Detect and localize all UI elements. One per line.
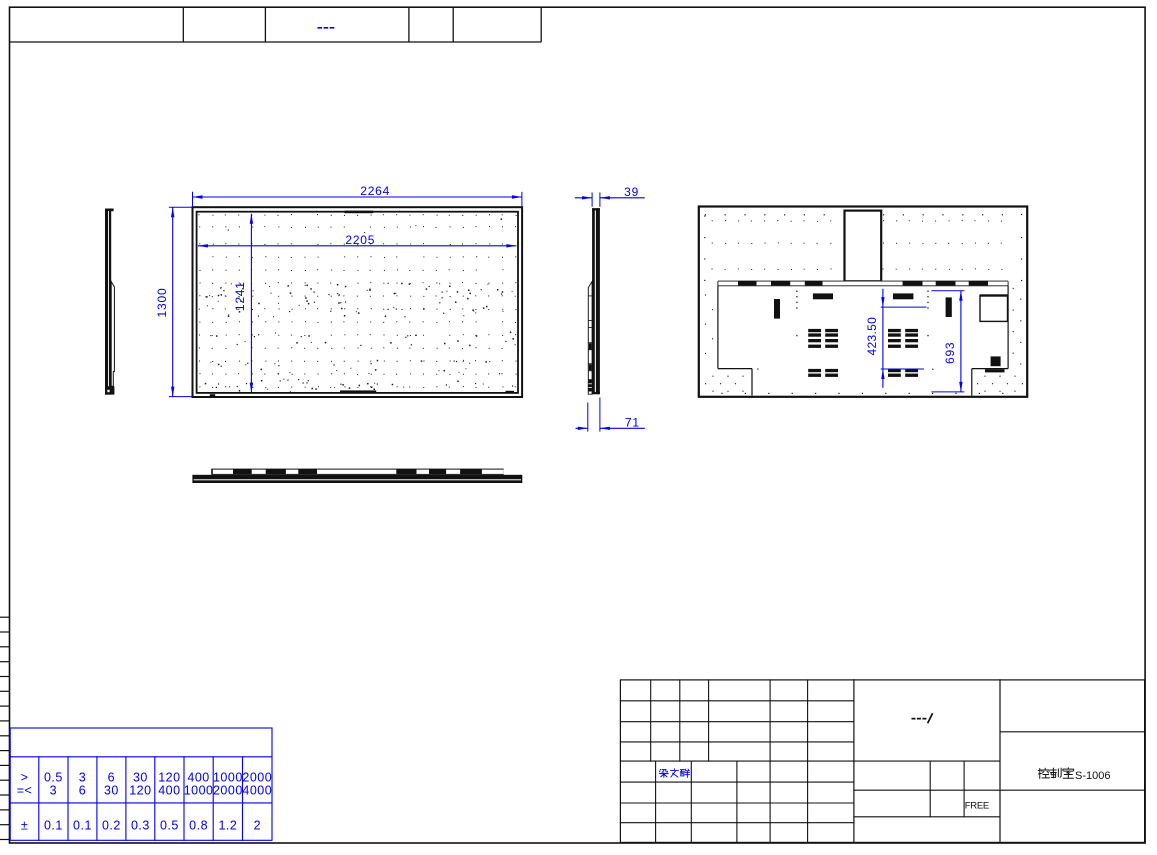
svg-text:±: ± [21,819,28,833]
svg-text:120: 120 [158,770,180,784]
svg-text:400: 400 [187,770,209,784]
svg-text:=<: =< [17,784,33,798]
svg-text:1241: 1241 [233,281,247,311]
svg-text:71: 71 [625,415,640,429]
svg-text:0.3: 0.3 [131,819,150,833]
svg-text:0.1: 0.1 [44,819,63,833]
svg-text:3: 3 [79,770,86,784]
svg-text:120: 120 [129,784,151,798]
svg-text:30: 30 [133,770,148,784]
svg-text:693: 693 [943,342,957,364]
svg-text:4000: 4000 [242,784,272,798]
svg-text:FREE: FREE [965,801,989,812]
svg-text:30: 30 [104,784,119,798]
svg-text:0.8: 0.8 [189,819,208,833]
svg-text:0.5: 0.5 [44,770,63,784]
svg-text:2: 2 [254,819,261,833]
svg-text:1000: 1000 [213,770,243,784]
svg-text:2000: 2000 [213,784,243,798]
svg-text:0.5: 0.5 [160,819,179,833]
svg-text:400: 400 [158,784,180,798]
svg-text:0.1: 0.1 [73,819,92,833]
svg-text:1300: 1300 [155,288,169,318]
svg-text:6: 6 [79,784,86,798]
svg-text:1.2: 1.2 [218,819,237,833]
svg-text:>: > [21,770,29,784]
svg-text:2000: 2000 [242,770,272,784]
svg-text:2205: 2205 [345,233,375,247]
svg-text:0.2: 0.2 [102,819,121,833]
svg-text:423.50: 423.50 [865,317,879,356]
svg-text:1000: 1000 [184,784,214,798]
svg-text:39: 39 [624,185,639,199]
svg-text:S-1006: S-1006 [1075,770,1110,782]
svg-text:3: 3 [50,784,57,798]
svg-text:2264: 2264 [360,184,390,198]
svg-text:6: 6 [108,770,115,784]
